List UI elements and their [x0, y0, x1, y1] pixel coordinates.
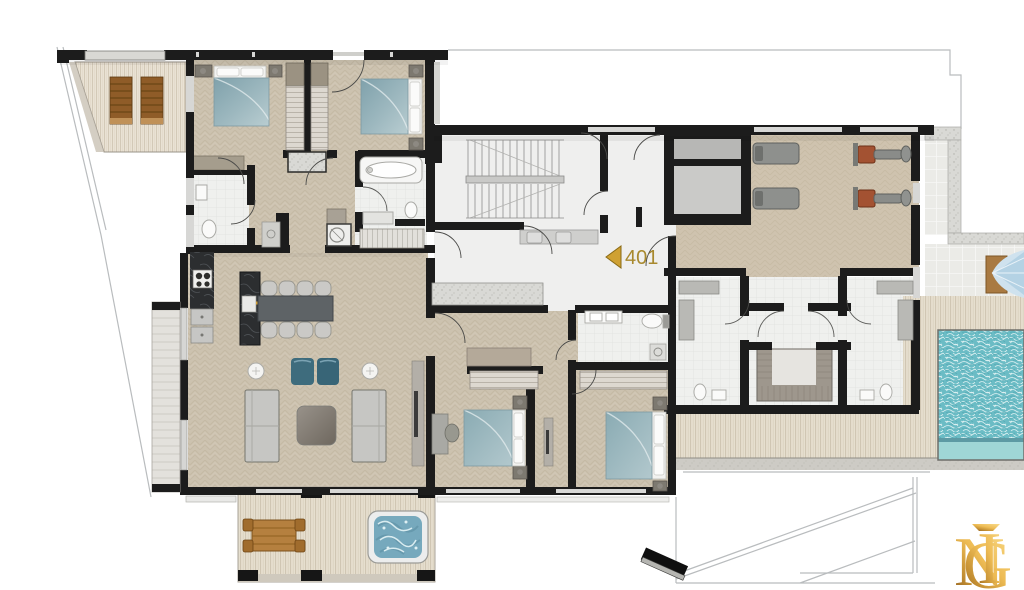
svg-text:401: 401 [625, 247, 658, 269]
